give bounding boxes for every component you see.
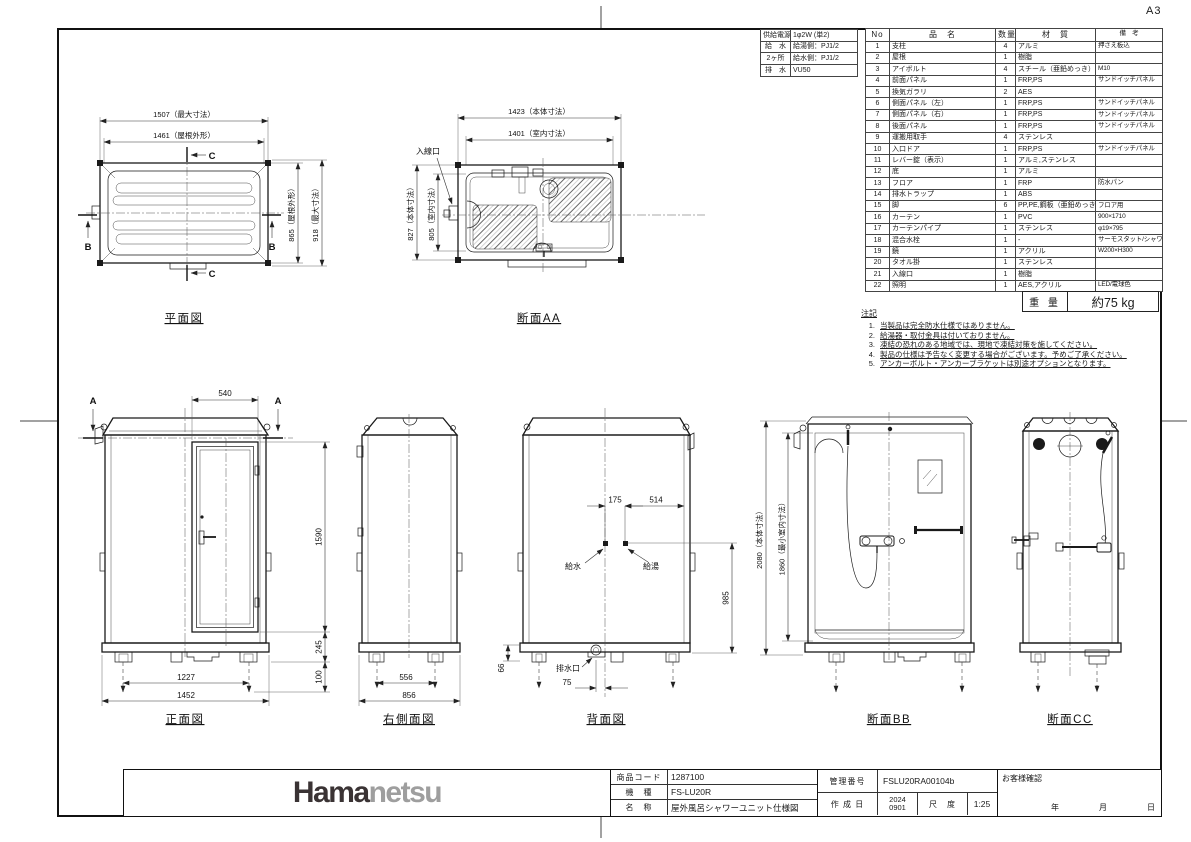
parts-header-qty: 数量 (996, 29, 1016, 42)
supply-water-count-label: 2ヶ所 (761, 53, 791, 65)
parts-row: 14 排水トラップ 1 ABS (866, 189, 1163, 200)
part-name: 換気ガラリ (890, 87, 996, 98)
parts-row: 5 換気ガラリ 2 AES (866, 87, 1163, 98)
logo-dark-part: Hama (293, 776, 369, 809)
hamanetsu-logo: Hamanetsu (293, 776, 441, 810)
part-name: 支柱 (890, 41, 996, 52)
part-name: 底 (890, 166, 996, 177)
parts-row: 12 底 1 アルミ (866, 166, 1163, 177)
month-label: 月 (1099, 802, 1107, 813)
part-material: - (1016, 235, 1096, 246)
part-material: FRP,PS (1016, 109, 1096, 120)
parts-row: 6 側面パネル（左） 1 FRP,PS サンドイッチパネル (866, 98, 1163, 109)
part-material: アルミ (1016, 41, 1096, 52)
parts-row: 2 屋根 1 樹脂 (866, 52, 1163, 63)
part-no: 21 (866, 269, 890, 280)
drawing-sheet: A3 .b1{stroke:#1a1a1a;stroke-width:1.3;f… (0, 0, 1191, 842)
part-qty: 4 (996, 64, 1016, 75)
control-no-label: 管理番号 (818, 770, 878, 792)
part-remark: サンドイッチパネル (1096, 98, 1163, 109)
product-code-label: 商品コード (611, 770, 668, 785)
part-remark (1096, 166, 1163, 177)
supply-hot-side-value: 給湯側：PJ1/2 (791, 41, 858, 53)
part-no: 7 (866, 109, 890, 120)
parts-row: 15 脚 6 PP,PE,鋼板（亜鉛めっき） フロア用 (866, 200, 1163, 211)
part-remark: フロア用 (1096, 200, 1163, 211)
part-remark: サーモスタット/シャワー付 (1096, 235, 1163, 246)
year-label: 年 (1051, 802, 1059, 813)
part-no: 11 (866, 155, 890, 166)
part-remark (1096, 269, 1163, 280)
parts-row: 10 入口ドア 1 FRP,PS サンドイッチパネル (866, 144, 1163, 155)
model-value: FS-LU20R (668, 785, 817, 800)
parts-header-remark: 備 考 (1096, 29, 1163, 42)
part-remark (1096, 87, 1163, 98)
part-no: 19 (866, 246, 890, 257)
model-label: 機 種 (611, 785, 668, 800)
part-remark: 防水パン (1096, 178, 1163, 189)
part-material: ABS (1016, 189, 1096, 200)
part-remark: W200×H300 (1096, 246, 1163, 257)
parts-header-name: 品 名 (890, 29, 996, 42)
part-material: 樹脂 (1016, 269, 1096, 280)
part-qty: 1 (996, 109, 1016, 120)
part-material: スチール（亜鉛めっき） (1016, 64, 1096, 75)
part-qty: 1 (996, 166, 1016, 177)
part-remark: サンドイッチパネル (1096, 109, 1163, 120)
part-qty: 6 (996, 200, 1016, 211)
part-material: AES (1016, 87, 1096, 98)
product-code-value: 1287100 (668, 770, 817, 785)
supply-water-label: 給 水 (761, 41, 791, 53)
part-name: 側面パネル（左） (890, 98, 996, 109)
part-material: ステンレス (1016, 132, 1096, 143)
part-material: FRP,PS (1016, 98, 1096, 109)
parts-header-row: No 品 名 数量 材 質 備 考 (866, 29, 1163, 42)
part-material: アルミ,ステンレス (1016, 155, 1096, 166)
part-name: 脚 (890, 200, 996, 211)
part-qty: 1 (996, 223, 1016, 234)
part-material: 樹脂 (1016, 52, 1096, 63)
parts-row: 19 鏡 1 アクリル W200×H300 (866, 246, 1163, 257)
date-value: 20240901 (878, 793, 918, 815)
part-remark (1096, 132, 1163, 143)
sheet-size-label: A3 (1146, 5, 1161, 17)
parts-row: 9 運搬用取手 4 ステンレス (866, 132, 1163, 143)
customer-confirm-label: お客様確認 (1002, 773, 1042, 784)
supply-table: 供給電源1φ2W (単2) 給 水給湯側：PJ1/2 2ヶ所給水側：PJ1/2 … (760, 29, 858, 77)
part-material: アルミ (1016, 166, 1096, 177)
note-item: 給湯器・取付金具は付いておりません。 (861, 331, 1161, 341)
parts-row: 8 後面パネル 1 FRP,PS サンドイッチパネル (866, 121, 1163, 132)
part-no: 8 (866, 121, 890, 132)
part-remark (1096, 155, 1163, 166)
supply-drain-label: 排 水 (761, 65, 791, 77)
part-material: FRP,PS (1016, 144, 1096, 155)
title-block: Hamanetsu 商品コード 1287100 機 種 FS-LU20R 名 称… (123, 769, 1162, 817)
part-remark: サンドイッチパネル (1096, 144, 1163, 155)
part-material: アクリル (1016, 246, 1096, 257)
part-no: 13 (866, 178, 890, 189)
part-no: 3 (866, 64, 890, 75)
part-remark: 押さえ板込 (1096, 41, 1163, 52)
supply-cold-side-value: 給水側：PJ1/2 (791, 53, 858, 65)
part-no: 18 (866, 235, 890, 246)
logo-box: Hamanetsu (124, 770, 611, 816)
parts-row: 16 カーテン 1 PVC 900×1710 (866, 212, 1163, 223)
part-remark: サンドイッチパネル (1096, 121, 1163, 132)
part-name: 前面パネル (890, 75, 996, 86)
title-block-left: 商品コード 1287100 機 種 FS-LU20R 名 称 屋外風呂シャワーユ… (611, 770, 818, 816)
part-qty: 1 (996, 155, 1016, 166)
part-name: アイボルト (890, 64, 996, 75)
parts-header-material: 材 質 (1016, 29, 1096, 42)
part-material: AES,アクリル (1016, 280, 1096, 291)
part-name: 照明 (890, 280, 996, 291)
parts-row: 4 前面パネル 1 FRP,PS サンドイッチパネル (866, 75, 1163, 86)
part-material: FRP (1016, 178, 1096, 189)
part-material: ステンレス (1016, 223, 1096, 234)
part-name: カーテンパイプ (890, 223, 996, 234)
part-no: 16 (866, 212, 890, 223)
scale-label: 尺 度 (918, 793, 968, 815)
part-qty: 1 (996, 189, 1016, 200)
part-no: 12 (866, 166, 890, 177)
part-qty: 1 (996, 235, 1016, 246)
parts-table: No 品 名 数量 材 質 備 考 1 支柱 4 アルミ 押さえ板込 2 (865, 28, 1163, 292)
part-name: 後面パネル (890, 121, 996, 132)
part-name: 入線口 (890, 269, 996, 280)
part-remark: 900×1710 (1096, 212, 1163, 223)
part-remark: LED/電球色 (1096, 280, 1163, 291)
part-qty: 1 (996, 52, 1016, 63)
part-remark: φ19×795 (1096, 223, 1163, 234)
name-value: 屋外風呂シャワーユニット仕様図 (668, 800, 817, 815)
note-item: アンカーボルト・アンカーブラケットは別途オプションとなります。 (861, 359, 1161, 369)
part-qty: 1 (996, 269, 1016, 280)
part-no: 1 (866, 41, 890, 52)
part-name: 入口ドア (890, 144, 996, 155)
parts-row: 20 タオル掛 1 ステンレス (866, 257, 1163, 268)
part-name: フロア (890, 178, 996, 189)
part-qty: 1 (996, 212, 1016, 223)
part-no: 15 (866, 200, 890, 211)
title-block-mid: 管理番号 FSLU20RA00104b 作 成 日 20240901 尺 度 1… (818, 770, 998, 816)
note-item: 製品の仕様は予告なく変更する場合がございます。予めご了承ください。 (861, 350, 1161, 360)
part-material: FRP,PS (1016, 121, 1096, 132)
part-no: 9 (866, 132, 890, 143)
customer-confirm-box: お客様確認 年 月 日 (998, 770, 1161, 816)
day-label: 日 (1147, 802, 1155, 813)
part-qty: 2 (996, 87, 1016, 98)
date-label: 作 成 日 (818, 793, 878, 815)
part-material: PVC (1016, 212, 1096, 223)
parts-row: 7 側面パネル（右） 1 FRP,PS サンドイッチパネル (866, 109, 1163, 120)
part-no: 22 (866, 280, 890, 291)
part-qty: 1 (996, 75, 1016, 86)
part-no: 20 (866, 257, 890, 268)
notes: 注記 当製品は完全防水仕様ではありません。 給湯器・取付金具は付いておりません。… (861, 308, 1161, 369)
part-name: 側面パネル（右） (890, 109, 996, 120)
scale-value: 1:25 (968, 793, 996, 815)
part-name: 屋根 (890, 52, 996, 63)
part-no: 14 (866, 189, 890, 200)
part-material: FRP,PS (1016, 75, 1096, 86)
note-item: 当製品は完全防水仕様ではありません。 (861, 321, 1161, 331)
supply-drain-value: VU50 (791, 65, 858, 77)
part-no: 17 (866, 223, 890, 234)
part-name: レバー錠（表示） (890, 155, 996, 166)
parts-row: 22 照明 1 AES,アクリル LED/電球色 (866, 280, 1163, 291)
parts-header-no: No (866, 29, 890, 42)
part-remark: サンドイッチパネル (1096, 75, 1163, 86)
part-no: 5 (866, 87, 890, 98)
part-remark (1096, 52, 1163, 63)
name-label: 名 称 (611, 800, 668, 815)
parts-row: 17 カーテンパイプ 1 ステンレス φ19×795 (866, 223, 1163, 234)
date-fields: 年 月 日 (998, 802, 1155, 813)
parts-row: 21 入線口 1 樹脂 (866, 269, 1163, 280)
part-qty: 1 (996, 246, 1016, 257)
part-name: 鏡 (890, 246, 996, 257)
part-qty: 1 (996, 257, 1016, 268)
part-qty: 1 (996, 178, 1016, 189)
part-name: カーテン (890, 212, 996, 223)
control-no-value: FSLU20RA00104b (878, 770, 997, 792)
parts-row: 18 混合水栓 1 - サーモスタット/シャワー付 (866, 235, 1163, 246)
part-no: 6 (866, 98, 890, 109)
parts-row: 3 アイボルト 4 スチール（亜鉛めっき） M10 (866, 64, 1163, 75)
notes-title: 注記 (861, 308, 1161, 319)
parts-row: 11 レバー錠（表示） 1 アルミ,ステンレス (866, 155, 1163, 166)
part-qty: 1 (996, 121, 1016, 132)
supply-power-label: 供給電源 (761, 30, 791, 42)
part-name: 運搬用取手 (890, 132, 996, 143)
part-remark: M10 (1096, 64, 1163, 75)
part-no: 4 (866, 75, 890, 86)
part-qty: 1 (996, 280, 1016, 291)
part-no: 2 (866, 52, 890, 63)
part-no: 10 (866, 144, 890, 155)
part-qty: 4 (996, 41, 1016, 52)
supply-power-value: 1φ2W (単2) (791, 30, 858, 42)
part-name: 混合水栓 (890, 235, 996, 246)
part-name: タオル掛 (890, 257, 996, 268)
part-remark (1096, 257, 1163, 268)
logo-light-part: netsu (369, 776, 442, 809)
parts-row: 1 支柱 4 アルミ 押さえ板込 (866, 41, 1163, 52)
part-name: 排水トラップ (890, 189, 996, 200)
parts-row: 13 フロア 1 FRP 防水パン (866, 178, 1163, 189)
part-material: ステンレス (1016, 257, 1096, 268)
part-qty: 4 (996, 132, 1016, 143)
part-remark (1096, 189, 1163, 200)
part-qty: 1 (996, 98, 1016, 109)
part-qty: 1 (996, 144, 1016, 155)
note-item: 凍結の恐れのある地域では、現地で凍結対策を施してください。 (861, 340, 1161, 350)
part-material: PP,PE,鋼板（亜鉛めっき） (1016, 200, 1096, 211)
